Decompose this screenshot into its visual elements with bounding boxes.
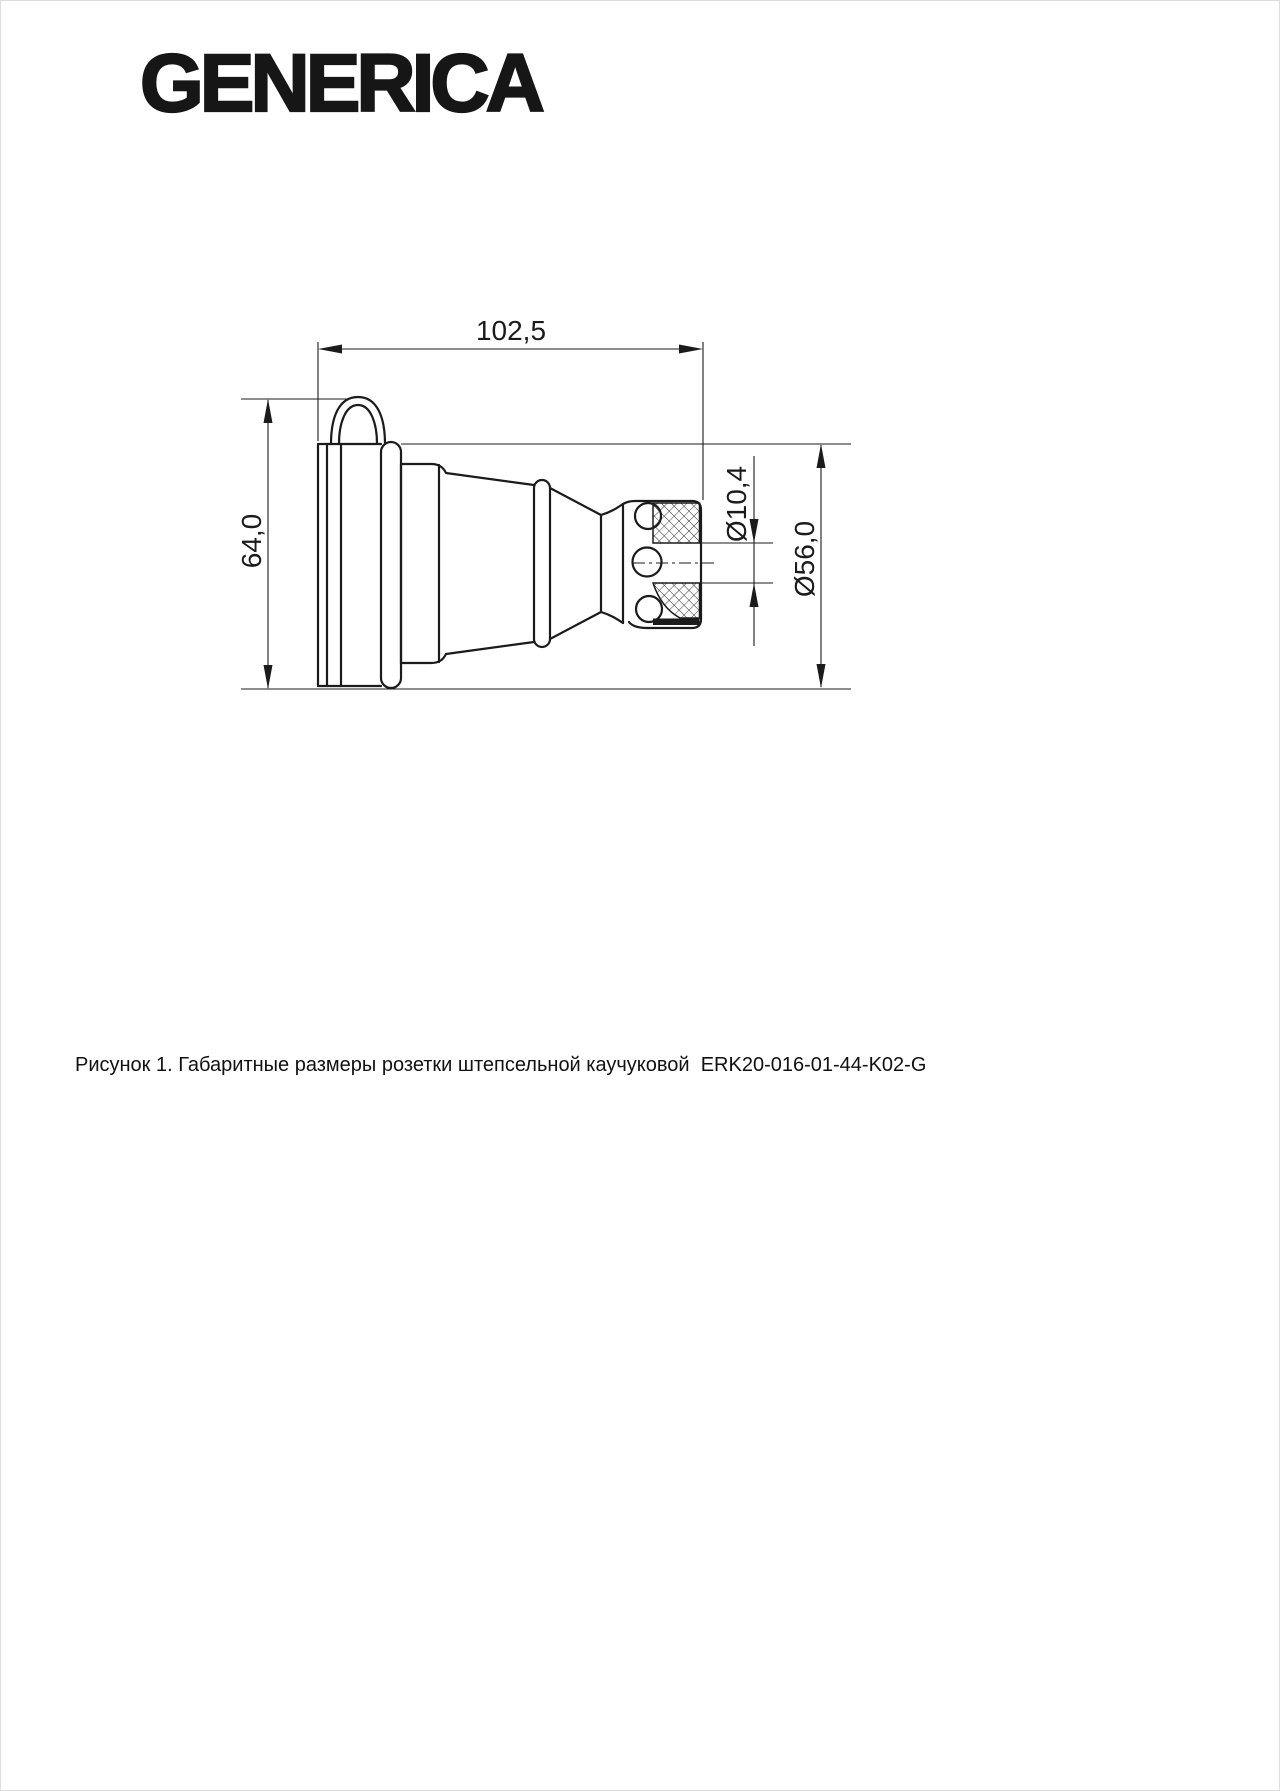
dimension-overall-length: 102,5	[318, 315, 703, 354]
end-cap	[623, 501, 715, 628]
dimension-body-diameter: Ø56,0	[789, 444, 826, 688]
extension-lines	[241, 342, 851, 689]
dim-arrow-up	[264, 399, 273, 423]
dimension-overall-height: 64,0	[236, 399, 273, 689]
socket-dimensional-drawing: 102,5 64,0 Ø10,4 Ø56,0	[1, 1, 1280, 901]
body-cone	[401, 464, 623, 663]
dim-label-overall-height: 64,0	[236, 514, 267, 569]
dimension-cable-hole: Ø10,4	[721, 456, 759, 646]
dim-arrow-right	[679, 345, 703, 354]
dim-arrow-down	[264, 665, 273, 689]
dim-arrow-up	[750, 583, 759, 607]
dim-arrow-down	[817, 664, 826, 688]
dim-label-overall-length: 102,5	[476, 315, 546, 346]
figure-caption: Рисунок 1. Габаритные размеры розетки шт…	[75, 1054, 1175, 1077]
dim-arrow-left	[318, 345, 342, 354]
dim-label-cable-hole: Ø10,4	[721, 466, 752, 542]
carry-loop	[331, 397, 385, 444]
document-page: GENERICA	[0, 0, 1280, 1791]
dim-label-body-diameter: Ø56,0	[789, 521, 820, 597]
cap-base-band	[653, 619, 700, 626]
flange	[318, 442, 401, 688]
dim-arrow-up	[817, 444, 826, 468]
